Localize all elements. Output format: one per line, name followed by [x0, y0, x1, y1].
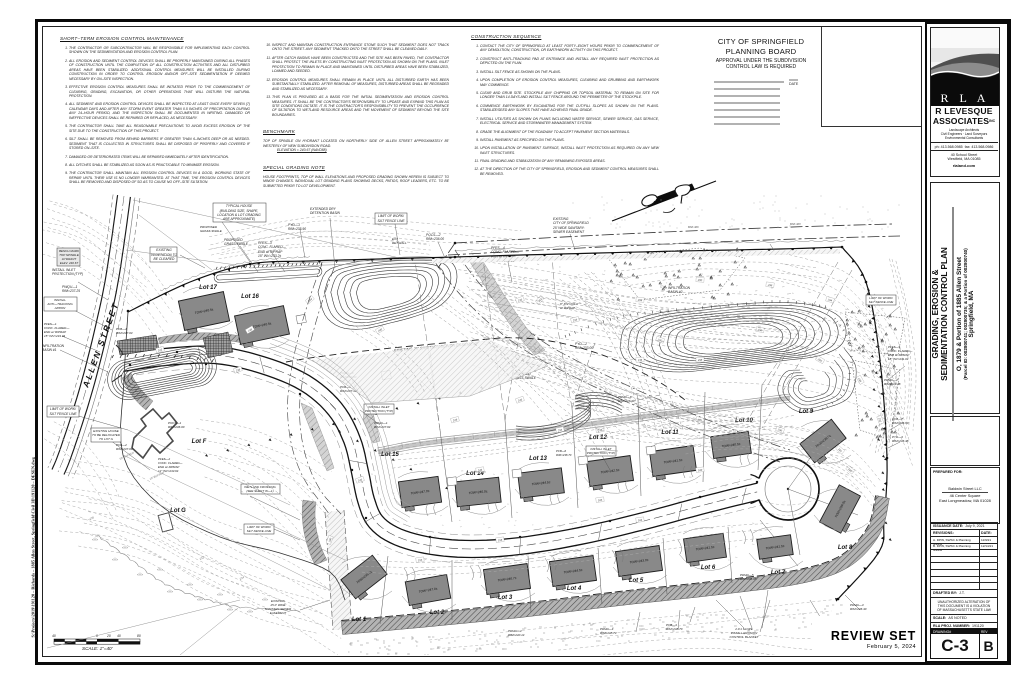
- svg-text:40: 40: [117, 634, 121, 638]
- svg-text:PROTECTION (TYP): PROTECTION (TYP): [52, 272, 83, 276]
- svg-text:Lot 1: Lot 1: [352, 617, 367, 623]
- svg-text:ELEV. 240.67: ELEV. 240.67: [60, 261, 79, 265]
- svg-text:BNK-308: BNK-308: [790, 222, 801, 226]
- svg-text:0: 0: [96, 634, 98, 638]
- svg-text:15" INV=233.2±: 15" INV=233.2±: [258, 254, 281, 258]
- svg-text:20: 20: [106, 634, 111, 638]
- svg-text:BASIN #1: BASIN #1: [42, 348, 57, 352]
- svg-text:CONTROL BLANKET: CONTROL BLANKET: [729, 635, 759, 639]
- svg-text:CONC. FLARED—: CONC. FLARED—: [491, 250, 520, 254]
- svg-text:236: 236: [637, 358, 643, 362]
- svg-text:APRON: APRON: [54, 306, 67, 310]
- svg-text:SCALE: 1"=40': SCALE: 1"=40': [82, 646, 113, 651]
- svg-text:RIM=237.30: RIM=237.30: [618, 399, 635, 403]
- svg-text:RIM=238.70: RIM=238.70: [556, 453, 572, 457]
- svg-text:RIM=236.48: RIM=236.48: [892, 439, 909, 443]
- svg-text:Lot 9: Lot 9: [799, 409, 814, 415]
- svg-text:10' BUFFER: 10' BUFFER: [149, 471, 165, 481]
- svg-text:RIM=240.14: RIM=240.14: [508, 633, 525, 637]
- svg-text:BNK-306: BNK-306: [688, 225, 699, 229]
- svg-text:GRASS SWALE: GRASS SWALE: [200, 229, 223, 233]
- svg-text:CITY OF SPRINGFIELD: CITY OF SPRINGFIELD: [553, 221, 589, 225]
- svg-text:RIM=233.48: RIM=233.48: [884, 382, 901, 386]
- svg-text:R L A: R L A: [941, 91, 990, 105]
- svg-text:Lot 11: Lot 11: [661, 430, 679, 436]
- svg-text:Lot 17: Lot 17: [199, 285, 217, 291]
- svg-text:Lot 12: Lot 12: [589, 435, 607, 441]
- svg-text:SEWER EASEMENT: SEWER EASEMENT: [553, 230, 585, 234]
- svg-text:Lot G: Lot G: [170, 508, 186, 514]
- svg-text:EASEMENT: EASEMENT: [270, 611, 288, 615]
- svg-text:LIMIT OF WORK/: LIMIT OF WORK/: [50, 407, 77, 411]
- svg-text:DATE: DATE: [789, 82, 799, 86]
- svg-text:Lot 16: Lot 16: [241, 294, 259, 300]
- svg-text:RIM=236.40: RIM=236.40: [850, 607, 867, 611]
- svg-text:BASIN #2: BASIN #2: [668, 290, 683, 294]
- svg-text:40: 40: [52, 634, 56, 638]
- svg-text:RIM=238.70: RIM=238.70: [666, 627, 683, 631]
- svg-text:EXISTING: EXISTING: [156, 248, 172, 252]
- svg-text:TO LOT G: TO LOT G: [99, 437, 114, 441]
- svg-text:234: 234: [238, 575, 245, 581]
- svg-text:Lot 3: Lot 3: [498, 595, 513, 601]
- svg-text:Lot F: Lot F: [192, 439, 207, 445]
- svg-text:RIM=236.00: RIM=236.00: [168, 425, 185, 429]
- svg-text:RIM=237.03: RIM=237.03: [116, 447, 133, 451]
- svg-text:238: 238: [697, 358, 703, 362]
- svg-text:18" INV=231.04: 18" INV=231.04: [888, 357, 909, 361]
- svg-text:RIM=235.90: RIM=235.90: [288, 227, 306, 231]
- svg-text:SILT FENCE LINE: SILT FENCE LINE: [247, 529, 273, 533]
- svg-text:Lot 7: Lot 7: [771, 570, 786, 576]
- svg-text:RET.WALL: RET.WALL: [392, 241, 407, 245]
- svg-text:Lot 13: Lot 13: [529, 456, 547, 462]
- svg-text:SILT FENCE LINE: SILT FENCE LINE: [869, 300, 895, 304]
- svg-text:230: 230: [697, 278, 703, 282]
- svg-text:RIM=237.25: RIM=237.25: [62, 289, 80, 293]
- svg-text:SILT FENCE LINE: SILT FENCE LINE: [49, 412, 77, 416]
- svg-text:SILT FENCE LINE: SILT FENCE LINE: [377, 219, 405, 223]
- svg-text:80: 80: [137, 634, 141, 638]
- svg-text:RIM=236.00: RIM=236.00: [426, 237, 444, 241]
- svg-text:LIMIT OF WORK/: LIMIT OF WORK/: [378, 214, 405, 218]
- svg-text:Lot 8: Lot 8: [838, 545, 853, 551]
- svg-text:15" INV=234.04: 15" INV=234.04: [44, 334, 65, 338]
- svg-text:232: 232: [198, 555, 205, 561]
- svg-text:DETENTION BASIN: DETENTION BASIN: [310, 211, 340, 215]
- svg-text:TYPICAL HOUSE: TYPICAL HOUSE: [226, 204, 253, 208]
- svg-text:RIM=236.95: RIM=236.95: [740, 577, 757, 581]
- svg-text:Lot 4: Lot 4: [567, 586, 582, 592]
- svg-text:w/ RIPRAP: w/ RIPRAP: [560, 306, 575, 310]
- svg-text:PROTECTION (TYP): PROTECTION (TYP): [365, 409, 393, 413]
- svg-text:BE CLEARED: BE CLEARED: [154, 257, 176, 261]
- svg-text:238: 238: [637, 298, 643, 302]
- svg-text:RIM=237.03: RIM=237.03: [116, 331, 133, 335]
